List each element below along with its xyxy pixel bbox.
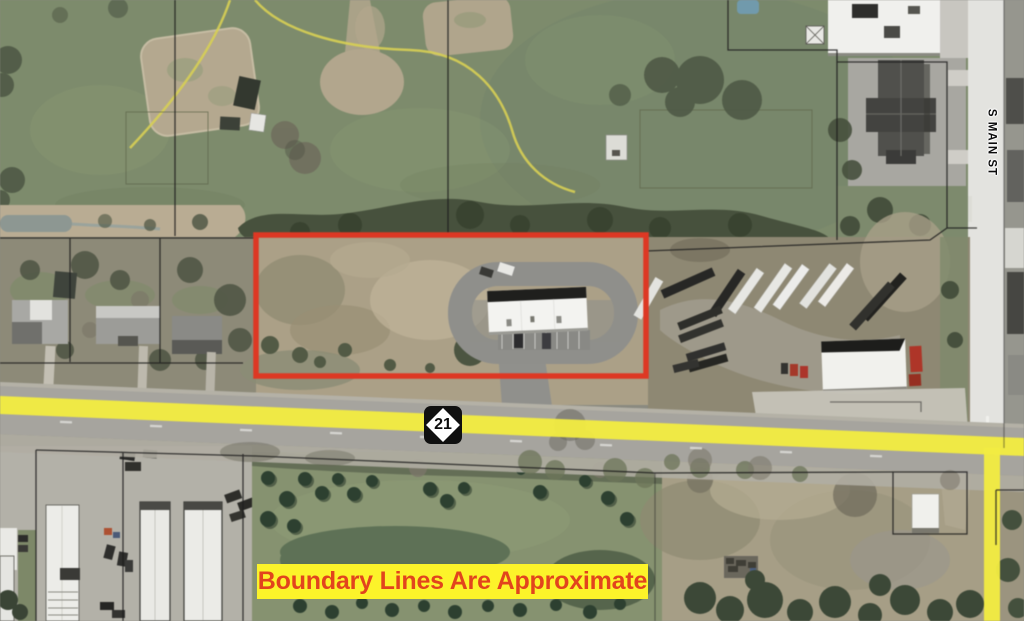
subject-parcel xyxy=(240,237,648,406)
white-trailer xyxy=(249,113,266,132)
main-street-road xyxy=(968,0,1004,450)
white-shed xyxy=(606,135,627,160)
yard-building xyxy=(821,339,907,393)
garage-shed xyxy=(53,271,77,299)
residential-row xyxy=(0,237,256,405)
disclaimer-banner: Boundary Lines Are Approximate xyxy=(257,564,648,599)
subject-building xyxy=(487,287,588,335)
house-b xyxy=(96,306,160,346)
trailer-yard xyxy=(633,212,970,445)
house-a xyxy=(12,300,68,344)
aerial-photo xyxy=(0,0,1024,621)
parked-car xyxy=(514,332,523,348)
aerial-map: S MAIN ST 21 Boundary Lines Are Approxim… xyxy=(0,0,1024,621)
creek-water xyxy=(0,215,72,232)
street-name-label: S MAIN ST xyxy=(983,88,998,198)
red-truck xyxy=(909,346,922,373)
small-shed xyxy=(912,494,939,531)
route-highlight-main-st xyxy=(984,448,1000,621)
blue-pool xyxy=(737,0,759,14)
route-21-shield: 21 xyxy=(424,406,462,444)
route-number: 21 xyxy=(424,406,462,444)
house-c xyxy=(172,316,222,354)
storage-facility xyxy=(0,446,255,621)
